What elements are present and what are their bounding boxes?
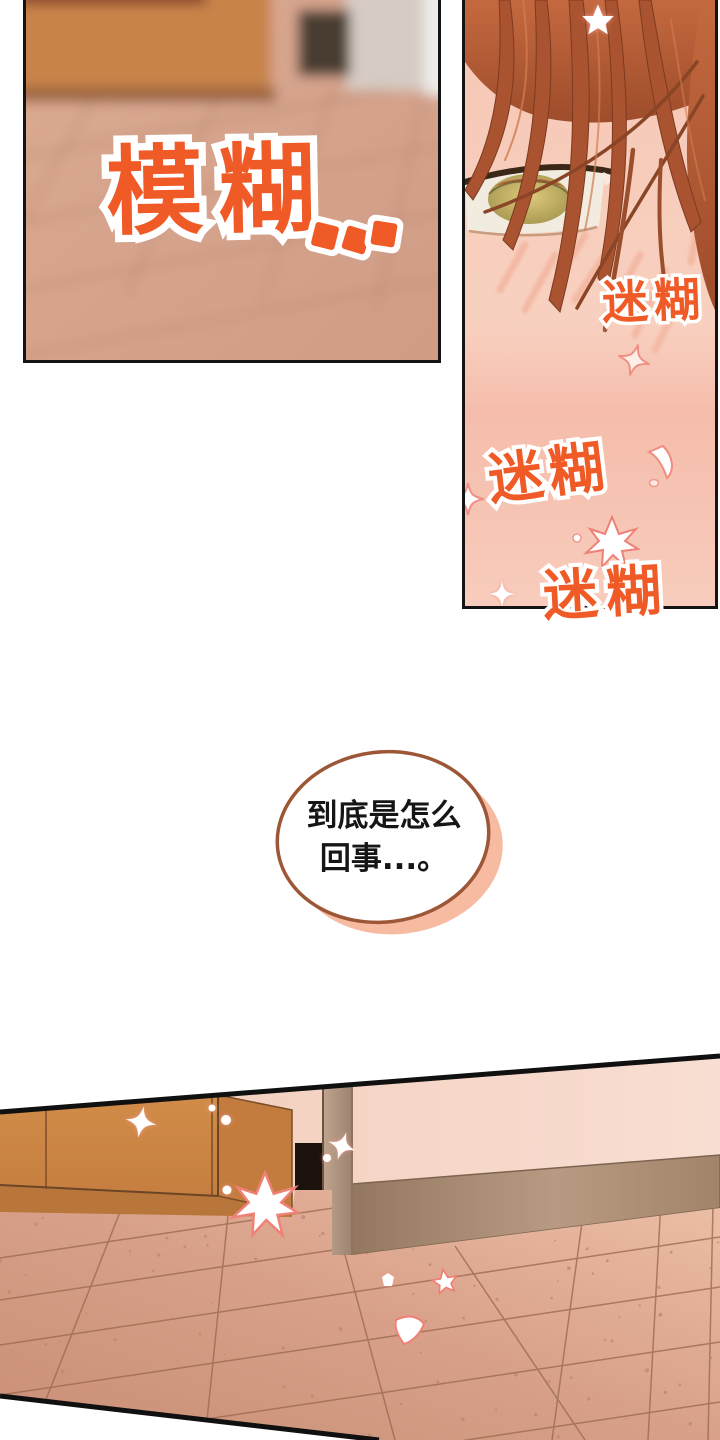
ellipsis-dot [310,221,339,250]
panel-wide-room [0,1050,720,1440]
ellipsis-dot [341,225,371,255]
sfx-ellipsis-dots [311,220,441,262]
sparkle-dot-icon [223,1186,232,1195]
pink-fade [465,320,715,412]
sfx-daze-text-1: 迷糊 迷糊 [601,276,707,326]
sparkle-dot-icon [650,480,659,487]
speech-text: 到底是怎么 回事...。 [268,744,500,932]
sparkle-dot-icon [221,1115,231,1125]
blurred-wall-light [424,0,438,95]
blurred-cabinet-shadow [26,88,276,102]
ellipsis-dot [370,220,397,247]
sfx-daze-text-3: 迷糊 迷糊 [542,563,671,625]
sparkle-dot-icon [323,1154,331,1162]
sfx-blurry-text: 模糊 模糊 [105,140,331,241]
blurred-doorway [298,10,350,76]
blurred-cabinet [26,0,271,98]
sparkle-dot-icon [209,1105,216,1112]
speech-line-2: 回事...。 [320,838,448,881]
sparkle-dot-icon [573,534,581,542]
blurred-top-strip [26,0,206,4]
comic-page: { "panels": { "blurry_room": { "sfx_text… [0,0,720,1440]
panel-face-closeup: 迷糊 迷糊 迷糊 迷糊 [462,0,718,609]
panel-blurry-room: 模糊 模糊 [23,0,441,363]
speech-line-1: 到底是怎么 [307,795,462,838]
speech-bubble: 到底是怎么 回事...。 [268,744,514,940]
sfx-daze-text-2: 迷糊 迷糊 [485,439,613,508]
